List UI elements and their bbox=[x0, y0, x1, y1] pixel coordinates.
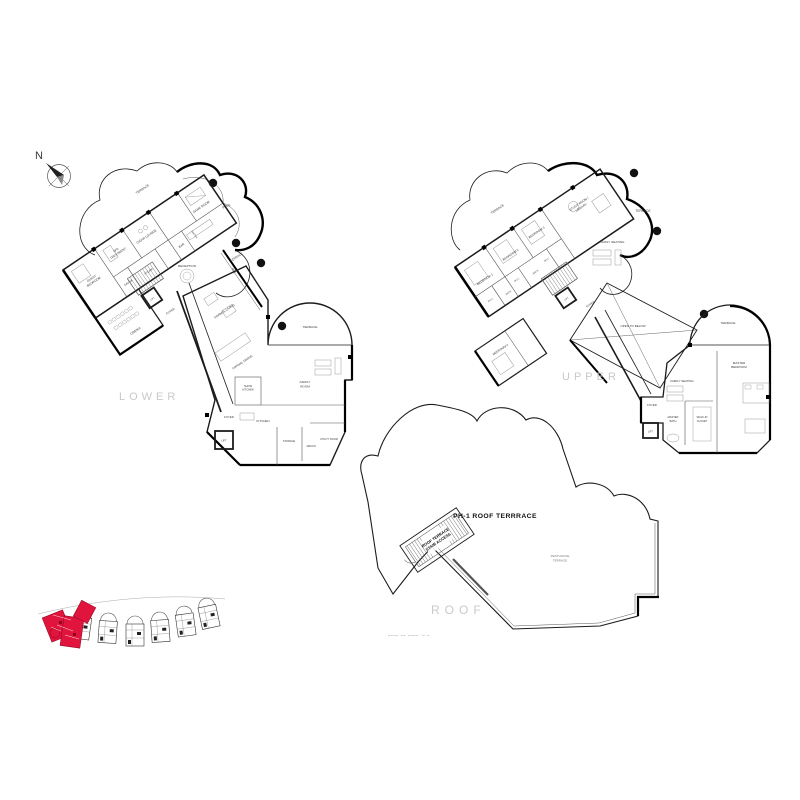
room-label-bar: BAR bbox=[178, 242, 186, 249]
svg-text:ROOM: ROOM bbox=[300, 385, 310, 389]
room-label-terrace-top: TERRACE bbox=[135, 183, 150, 195]
column-dot bbox=[630, 169, 638, 177]
column-dot bbox=[653, 227, 661, 235]
roof-notch bbox=[638, 597, 659, 616]
room-label-bedroom2: BEDROOM 2 bbox=[502, 248, 520, 262]
column-dot bbox=[257, 259, 265, 267]
room-label-utility: UTILITY ROOM bbox=[320, 438, 338, 441]
svg-text:CLOSET: CLOSET bbox=[697, 419, 708, 423]
room-label-cinema: CINEMA bbox=[129, 325, 142, 336]
family-sofa-furniture bbox=[315, 360, 331, 366]
master-bed-furniture bbox=[743, 383, 769, 403]
room-label-lift-b: LIFT bbox=[222, 440, 227, 443]
corridor bbox=[177, 291, 221, 412]
room-label-lift-a: LIFT bbox=[150, 296, 156, 302]
room-label-steam: STEAM bbox=[143, 267, 154, 276]
room-label-cigar-lounge: CIGAR LOUNGE bbox=[136, 228, 158, 245]
room-label-wic-3: W.I.C bbox=[544, 257, 551, 263]
key-plan-units bbox=[71, 596, 220, 646]
room-label-bath-1: BATH bbox=[505, 290, 512, 296]
room-label-terrace-arc: TERRACE bbox=[721, 321, 736, 325]
living-sofa-furniture bbox=[204, 292, 218, 305]
room-label-foyer-a: FOYER bbox=[165, 307, 176, 316]
cinema-seats-furniture bbox=[108, 305, 139, 331]
room-label-aircon: AIRCON bbox=[306, 445, 316, 448]
room-label-game-room: GAME ROOM bbox=[192, 199, 211, 214]
room-label-foyer-b: FOYER bbox=[224, 415, 234, 419]
room-label-show-kitchen: SHOW bbox=[244, 384, 253, 388]
closet-shelves-furniture bbox=[693, 407, 711, 441]
upper-stair-lift: LIFT bbox=[541, 262, 587, 309]
svg-text:BEDROOM: BEDROOM bbox=[731, 365, 747, 369]
room-label-formal-living: FORMAL LIVING bbox=[213, 303, 235, 320]
room-label-family-seating-b: FAMILY SEATING bbox=[670, 379, 694, 383]
compass-north-label: N bbox=[35, 150, 43, 162]
svg-text:TERRACE: TERRACE bbox=[553, 558, 567, 562]
roof-title: PH-1 ROOF TERRRACE bbox=[453, 513, 537, 520]
room-label-reception: RECEPTION bbox=[178, 264, 196, 268]
floor-plan-lower: TERRACE POOL BBQ TERRACE GUEST BEDROOM S… bbox=[55, 155, 365, 475]
floor-plan-roof: ROOF TERRACE STAIR ACCESS PH-1 ROOF TERR… bbox=[358, 392, 688, 677]
room-label-lift-a: LIFT bbox=[564, 296, 570, 302]
room-label-open-to-below: OPEN TO BELOW bbox=[620, 324, 645, 328]
room-label-terrace-right: TERRACE bbox=[229, 252, 243, 263]
column-dot bbox=[232, 239, 240, 247]
level-label-lower: LOWER bbox=[119, 391, 179, 403]
upper-bedroom4-block: BEDROOM 4 bbox=[475, 319, 547, 386]
room-label-terrace-right: TERRACE bbox=[635, 209, 650, 213]
penthouse-terrace-label: PENTHOUSE bbox=[551, 554, 570, 558]
floorplan-sheet: N TERRACE POOL BBQ TERRACE bbox=[0, 0, 800, 800]
kitchen-island-furniture bbox=[240, 413, 254, 420]
room-label-bedroom4: BEDROOM 4 bbox=[492, 343, 509, 357]
room-label-family-seating-a: FAMILY SEATING bbox=[600, 240, 626, 244]
room-label-family-room: FAMILY bbox=[300, 380, 311, 384]
room-label-storage: STORAGE bbox=[283, 440, 296, 443]
room-label-kitchen: KITCHEN bbox=[256, 419, 269, 423]
room-label-formal-dining: FORMAL DINING bbox=[231, 354, 253, 371]
room-label-wic-2: W.I.C bbox=[514, 277, 521, 283]
level-label-upper: UPPER bbox=[562, 371, 620, 383]
column-dot bbox=[278, 322, 286, 330]
svg-text:KITCHEN: KITCHEN bbox=[242, 388, 254, 392]
room-label-foyer-a: FOYER bbox=[585, 300, 596, 309]
room-label-bedroom3: BEDROOM 3 bbox=[528, 225, 546, 239]
room-label-wic-1: W.I.C bbox=[487, 297, 494, 303]
site-boundary-curve bbox=[38, 597, 225, 614]
lower-spa-wing: GUEST BEDROOM SPA TREATMENT SAUNA STEAM … bbox=[62, 173, 261, 354]
room-label-bedroom1: BEDROOM 1 bbox=[476, 272, 494, 286]
bar-counter-furniture bbox=[187, 219, 214, 240]
level-label-roof: ROOF bbox=[431, 603, 486, 617]
room-label-walk-in-closet: WALK-IN bbox=[697, 415, 708, 419]
scale-micro-note: –––– –– –––– ·– – bbox=[388, 633, 430, 637]
site-key-plan bbox=[35, 592, 230, 654]
room-label-bath-2: BATH bbox=[532, 269, 539, 275]
room-label-terrace-left: TERRACE bbox=[490, 203, 505, 215]
lower-terrace-outline bbox=[80, 163, 263, 297]
room-label-terrace-arc: TERRACE bbox=[303, 325, 318, 329]
